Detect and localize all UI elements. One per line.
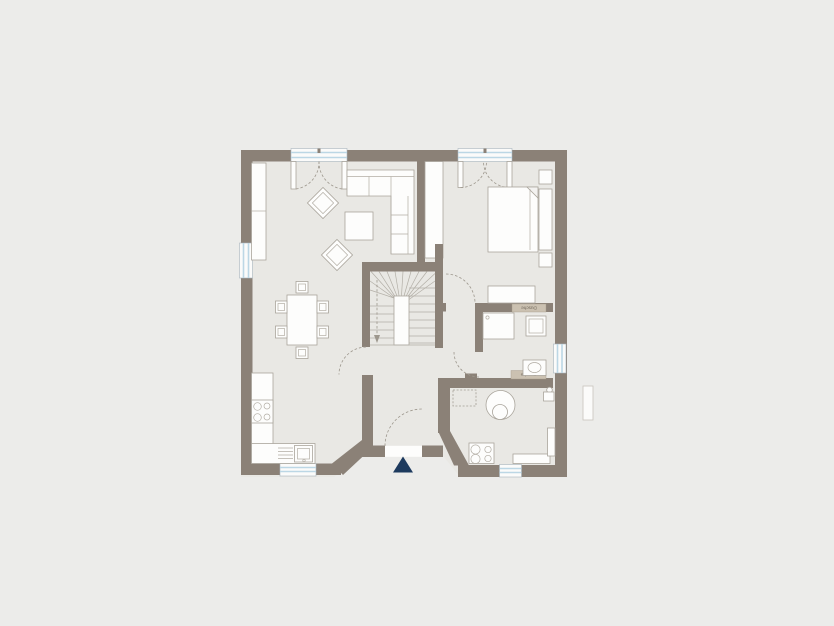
utility-counter <box>513 454 550 464</box>
floor-plan-drawing: Dusche Dusche <box>0 0 834 626</box>
door-leaf <box>458 162 463 188</box>
bed <box>488 187 538 252</box>
sideboard <box>252 163 267 260</box>
door-leaf <box>342 162 347 190</box>
built-in-shaft <box>425 162 443 259</box>
window-mullion <box>484 149 487 154</box>
window-kitchen-south <box>280 464 316 477</box>
utility-fixture-box <box>544 392 555 401</box>
wall-stair-west <box>362 262 370 347</box>
door-hinge-pillar-bedroom <box>438 303 446 312</box>
stove <box>252 400 274 423</box>
window-bathroom-east <box>554 344 567 373</box>
boiler <box>486 391 515 420</box>
nightstand <box>539 253 552 267</box>
headboard <box>539 189 552 250</box>
wall-west <box>241 150 253 475</box>
stair-spine-wall <box>394 296 409 345</box>
door-leaf <box>507 162 512 188</box>
kitchen-sink <box>295 446 313 463</box>
wc <box>526 316 546 336</box>
exterior-element <box>583 386 593 420</box>
entry-wall-right <box>422 446 443 458</box>
window-west <box>240 243 253 278</box>
wall-east <box>555 150 567 477</box>
dining-table <box>287 295 317 345</box>
wall-bathroom-west <box>475 312 483 352</box>
nightstand <box>539 170 552 184</box>
window-mullion <box>318 149 321 154</box>
wall-bath-utility <box>438 378 553 388</box>
coffee-table <box>345 212 373 240</box>
front-door-threshold <box>385 446 422 457</box>
wall-utility-west <box>438 388 450 433</box>
wall-hall-kitchen <box>362 375 373 448</box>
shower-label-top: Dusche <box>521 305 537 310</box>
wall-north <box>241 150 567 162</box>
utility-cabinet <box>548 428 556 456</box>
door-leaf <box>291 162 296 190</box>
wall-stub-utility <box>465 374 477 381</box>
wall-living-bedroom <box>417 161 425 262</box>
window-utility-south <box>500 465 522 478</box>
washer-dryer <box>469 443 494 464</box>
washbasin <box>523 360 546 376</box>
wall-stair-north <box>362 262 443 272</box>
floor-plan-page: Dusche Dusche <box>0 0 834 626</box>
shower <box>483 313 514 339</box>
wall-stub-niche <box>435 244 443 263</box>
dresser <box>488 286 535 303</box>
